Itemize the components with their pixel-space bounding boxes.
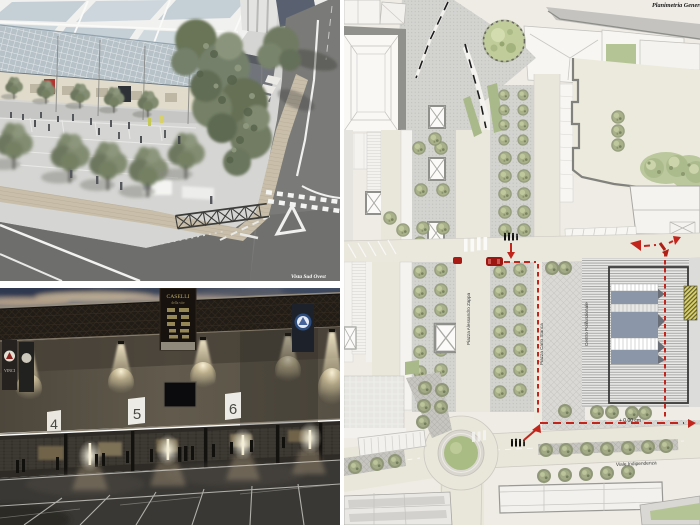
svg-text:VINCI: VINCI <box>4 368 16 373</box>
svg-text:Piazza Carlo Stanca: Piazza Carlo Stanca <box>539 323 544 365</box>
svg-text:+ 0.00 cm: + 0.00 cm <box>619 418 641 424</box>
svg-text:della vite: della vite <box>171 301 185 305</box>
svg-text:Vista Sud Ovest: Vista Sud Ovest <box>291 274 326 280</box>
svg-text:6: 6 <box>229 401 237 418</box>
svg-text:CASELLI: CASELLI <box>167 294 190 300</box>
svg-text:Planimetria Generale: Planimetria Generale <box>652 2 700 9</box>
svg-text:Centro Polifunzionale: Centro Polifunzionale <box>584 302 589 346</box>
svg-text:Piazza Alessandro Zappa: Piazza Alessandro Zappa <box>466 292 471 345</box>
svg-text:5: 5 <box>133 406 141 423</box>
svg-text:4: 4 <box>50 416 58 432</box>
